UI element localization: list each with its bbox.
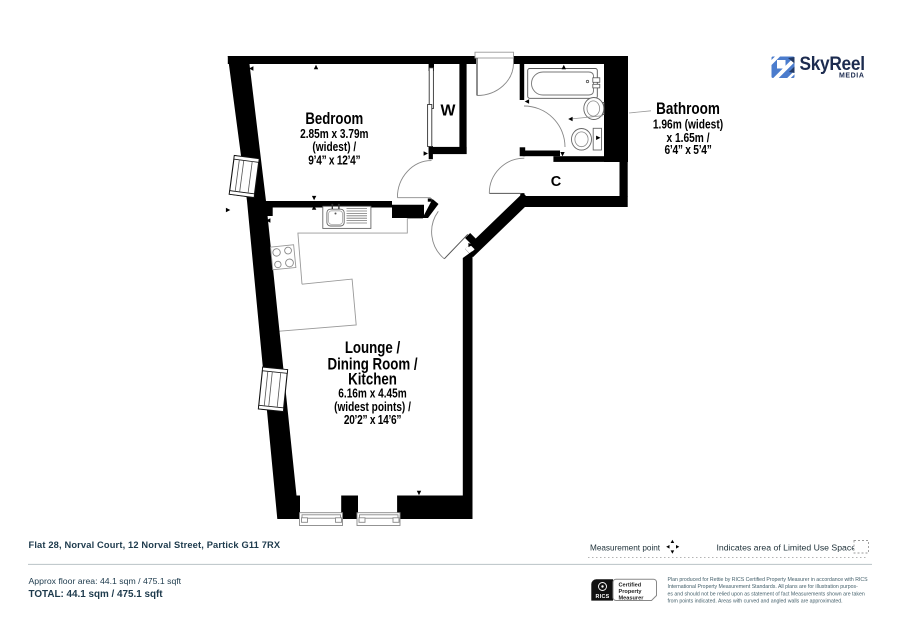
svg-text:from points indicated. Areas w: from points indicated. Areas with curved… [668,599,843,605]
svg-text:Measurer: Measurer [619,595,645,601]
svg-text:RICS: RICS [596,594,610,600]
svg-text:1.96m (widest): 1.96m (widest) [653,119,723,132]
svg-text:Flat 28, Norval Court, 12 Norv: Flat 28, Norval Court, 12 Norval Street,… [29,540,281,550]
svg-text:Property: Property [619,589,643,595]
svg-text:6.16m x 4.45m: 6.16m x 4.45m [338,388,406,401]
svg-text:Certified: Certified [619,583,642,589]
svg-text:TOTAL: 44.1 sqm / 475.1 sqft: TOTAL: 44.1 sqm / 475.1 sqft [29,589,164,600]
svg-text:(widest) /: (widest) / [312,141,356,154]
svg-text:es and should not be relied up: es and should not be relied upon as stat… [668,591,865,597]
svg-text:SkyReel: SkyReel [800,52,865,74]
svg-text:Plan produced for Rettie by RI: Plan produced for Rettie by RICS Certifi… [668,577,869,583]
svg-text:20’2” x 14’6”: 20’2” x 14’6” [344,414,401,427]
svg-text:C: C [551,174,562,190]
svg-text:2.85m x 3.79m: 2.85m x 3.79m [300,128,368,141]
svg-text:Kitchen: Kitchen [348,370,397,389]
svg-text:6’4” x 5’4”: 6’4” x 5’4” [664,144,711,157]
svg-text:W: W [441,102,456,119]
svg-text:Approx floor area: 44.1 sqm /: Approx floor area: 44.1 sqm / 475.1 sqft [29,576,182,586]
svg-text:Bathroom: Bathroom [656,100,720,119]
svg-text:Indicates area of Limited Use: Indicates area of Limited Use Space [717,542,857,552]
svg-text:MEDIA: MEDIA [839,73,865,80]
svg-text:Measurement point: Measurement point [590,543,661,552]
svg-text:9’4” x 12’4”: 9’4” x 12’4” [308,155,360,168]
svg-text:x 1.65m /: x 1.65m / [666,132,710,145]
svg-text:International Property Measur: International Property Measurement Stand… [668,584,859,590]
svg-text:Bedroom: Bedroom [305,110,363,129]
svg-text:(widest points) /: (widest points) / [334,401,412,414]
